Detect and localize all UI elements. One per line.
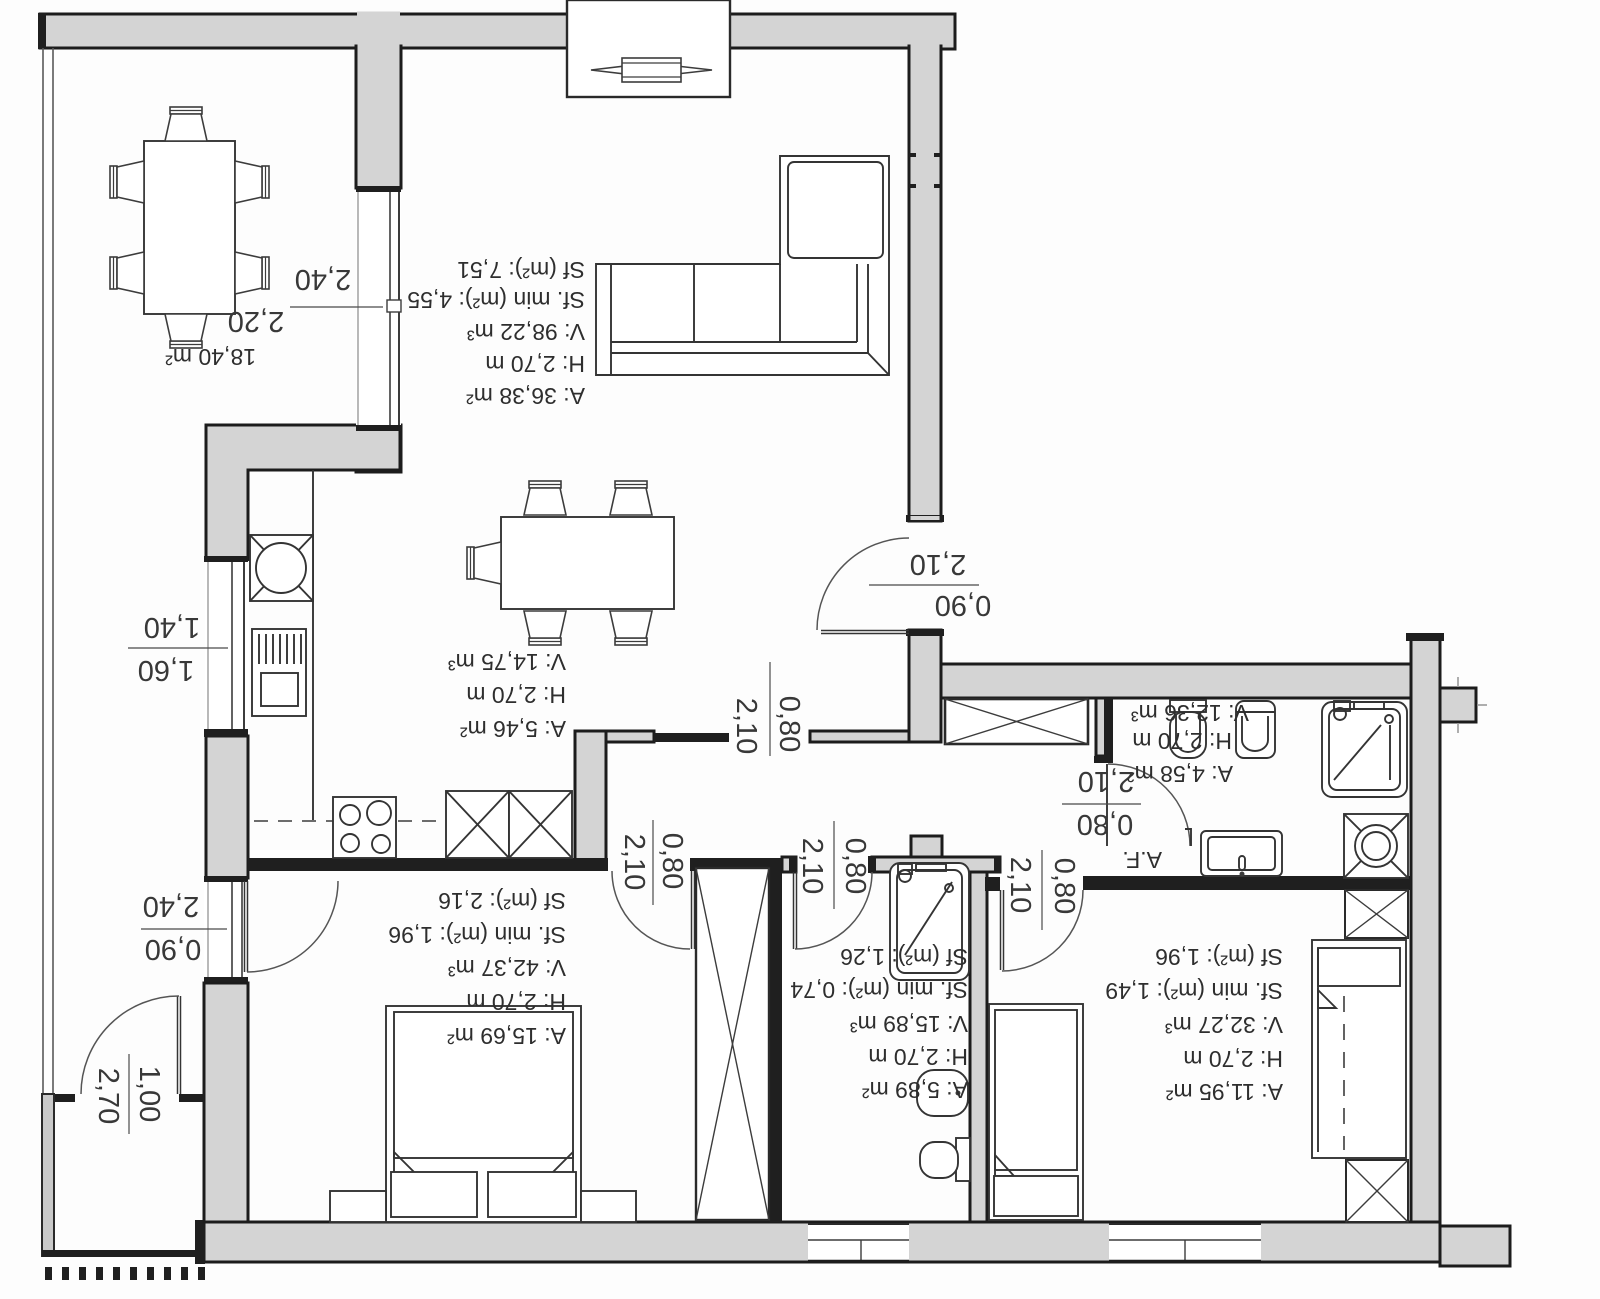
svg-text:1,40: 1,40 [144,611,200,643]
svg-text:A: 15,69 m²: A: 15,69 m² [447,1023,566,1049]
svg-text:H: 2,70 m: H: 2,70 m [1183,1046,1283,1072]
svg-text:Sf. min (m²): 1,49: Sf. min (m²): 1,49 [1105,978,1283,1004]
svg-text:V: 98,22 m³: V: 98,22 m³ [467,319,585,345]
svg-text:2,70: 2,70 [92,1068,124,1124]
svg-text:Sf (m²): 1,26: Sf (m²): 1,26 [840,944,968,970]
svg-text:0,80: 0,80 [1048,858,1080,914]
svg-text:2,40: 2,40 [143,890,199,922]
svg-text:A: 5,89 m²: A: 5,89 m² [862,1077,968,1103]
svg-text:H: 2,70 m: H: 2,70 m [485,351,585,377]
svg-text:Sf. min (m²): 0,74: Sf. min (m²): 0,74 [790,977,968,1003]
svg-text:0,80: 0,80 [656,833,688,889]
svg-text:A.F.: A.F. [1122,847,1162,873]
svg-text:1,00: 1,00 [133,1066,165,1122]
svg-text:V: 15,89 m³: V: 15,89 m³ [850,1011,968,1037]
svg-text:V: 12,36 m³: V: 12,36 m³ [1131,700,1249,726]
svg-text:H: 2,70 m: H: 2,70 m [466,989,566,1015]
svg-text:A: 5,46 m²: A: 5,46 m² [460,716,566,742]
svg-text:Sf (m²): 7,51: Sf (m²): 7,51 [457,257,585,283]
svg-text:Sf. min (m²): 4,55: Sf. min (m²): 4,55 [407,287,585,313]
svg-text:V: 32,27 m³: V: 32,27 m³ [1165,1012,1283,1038]
svg-text:18,40 m²: 18,40 m² [165,344,256,370]
svg-text:Sf (m²): 2,16: Sf (m²): 2,16 [438,888,566,914]
svg-text:A: 4,58 m²: A: 4,58 m² [1127,761,1233,787]
svg-text:2,10: 2,10 [910,548,966,580]
svg-text:2,20: 2,20 [228,305,284,337]
svg-text:2,40: 2,40 [295,263,351,295]
svg-text:Sf (m²): 1,96: Sf (m²): 1,96 [1155,944,1283,970]
svg-text:2,10: 2,10 [730,698,762,754]
svg-text:A: 11,95 m²: A: 11,95 m² [1165,1079,1283,1105]
svg-text:Sf. min (m²): 1,96: Sf. min (m²): 1,96 [388,922,566,948]
svg-text:V: 14,75 m³: V: 14,75 m³ [448,649,566,675]
svg-text:A: 36,38 m²: A: 36,38 m² [466,383,585,409]
svg-text:0,90: 0,90 [145,933,201,965]
svg-text:2,10: 2,10 [1004,857,1036,913]
svg-text:0,80: 0,80 [839,838,871,894]
svg-text:2,10: 2,10 [1078,765,1134,797]
svg-text:H: 2,70 m: H: 2,70 m [1132,728,1232,754]
svg-text:1,60: 1,60 [138,654,194,686]
svg-text:H: 2,70 m: H: 2,70 m [466,682,566,708]
svg-text:V: 42,37 m³: V: 42,37 m³ [448,955,566,981]
svg-text:0,80: 0,80 [773,696,805,752]
svg-text:0,90: 0,90 [935,589,991,621]
svg-text:2,10: 2,10 [618,834,650,890]
svg-text:H: 2,70 m: H: 2,70 m [868,1044,968,1070]
svg-text:2,10: 2,10 [796,838,828,894]
svg-text:0,80: 0,80 [1077,808,1133,840]
